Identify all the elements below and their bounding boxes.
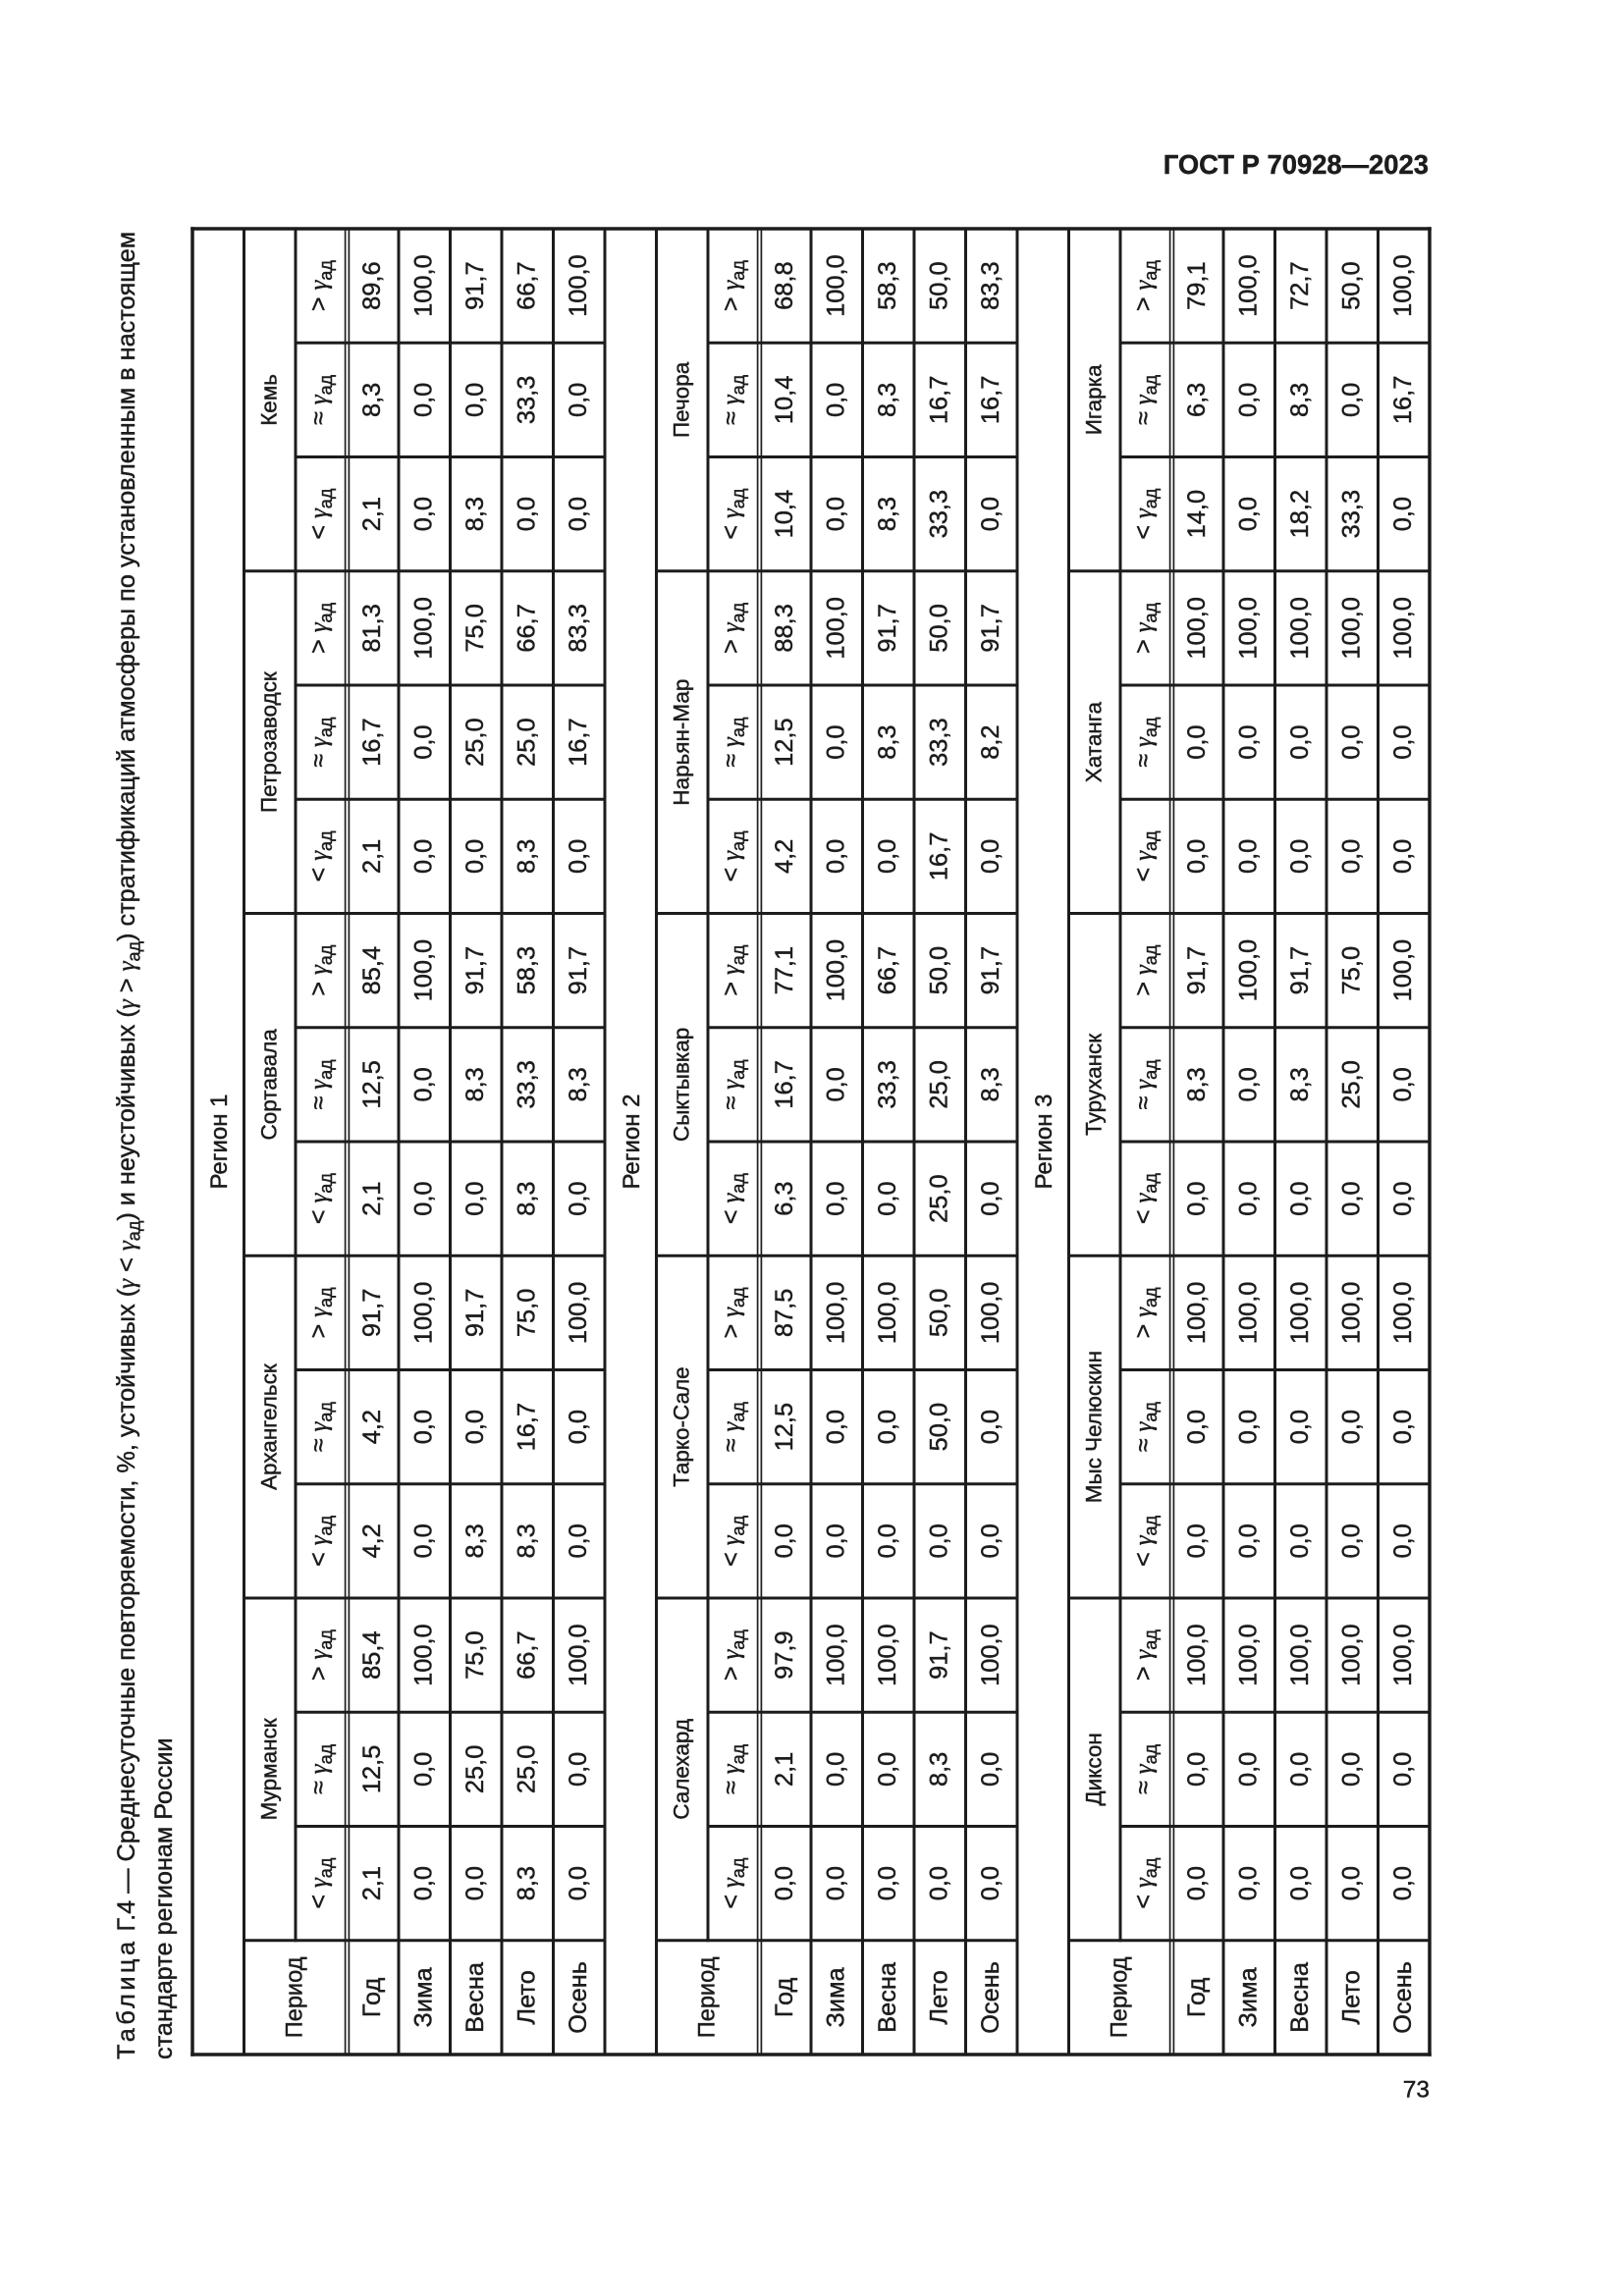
svg-text:16,7: 16,7 [358,718,386,766]
svg-text:100,0: 100,0 [1234,254,1262,317]
svg-text:83,3: 83,3 [977,261,1004,309]
svg-text:> γад: > γад [304,602,336,653]
svg-text:4,2: 4,2 [358,1523,386,1558]
svg-text:> γад: > γад [717,602,748,653]
svg-text:0,0: 0,0 [1234,1181,1262,1215]
svg-text:0,0: 0,0 [1389,1866,1417,1900]
svg-text:< γад: < γад [304,1857,336,1908]
svg-text:91,7: 91,7 [977,604,1004,652]
svg-text:0,0: 0,0 [1389,1752,1417,1787]
svg-text:0,0: 0,0 [925,1866,952,1900]
svg-text:0,0: 0,0 [461,1181,489,1215]
svg-text:91,7: 91,7 [1183,946,1211,994]
svg-text:0,0: 0,0 [771,1866,798,1900]
svg-text:66,7: 66,7 [513,604,540,652]
svg-text:0,0: 0,0 [565,1410,592,1444]
svg-text:75,0: 75,0 [461,1630,489,1679]
svg-text:100,0: 100,0 [822,1624,849,1686]
svg-text:91,7: 91,7 [461,946,489,994]
svg-text:66,7: 66,7 [874,946,901,994]
svg-text:0,0: 0,0 [409,1410,437,1444]
svg-text:100,0: 100,0 [1234,1624,1262,1686]
svg-text:≈ γад: ≈ γад [304,374,336,425]
svg-text:50,0: 50,0 [925,1403,952,1451]
svg-text:100,0: 100,0 [874,1624,901,1686]
svg-text:75,0: 75,0 [461,604,489,652]
svg-text:Регион 2: Регион 2 [619,1094,645,1189]
svg-text:0,0: 0,0 [874,1523,901,1558]
svg-text:100,0: 100,0 [977,1282,1004,1345]
svg-text:> γад: > γад [717,944,748,995]
svg-text:Петрозаводск: Петрозаводск [256,671,281,813]
svg-text:2,1: 2,1 [771,1752,798,1787]
svg-text:0,0: 0,0 [822,383,849,417]
svg-text:≈ γад: ≈ γад [717,717,748,768]
svg-text:0,0: 0,0 [822,1523,849,1558]
svg-text:Мыс Челюскин: Мыс Челюскин [1081,1351,1106,1503]
svg-text:> γад: > γад [717,1287,748,1338]
svg-text:0,0: 0,0 [1337,1866,1365,1900]
svg-text:Зима: Зима [822,1966,849,2027]
svg-text:Период: Период [283,1956,308,2038]
svg-text:16,7: 16,7 [513,1403,540,1451]
svg-text:25,0: 25,0 [513,718,540,766]
svg-text:0,0: 0,0 [822,497,849,531]
svg-text:0,0: 0,0 [565,1181,592,1215]
svg-text:0,0: 0,0 [1337,1523,1365,1558]
svg-text:0,0: 0,0 [822,724,849,759]
svg-text:0,0: 0,0 [1183,1410,1211,1444]
svg-text:16,7: 16,7 [565,718,592,766]
svg-text:< γад: < γад [304,488,336,539]
svg-text:Диксон: Диксон [1081,1733,1106,1805]
svg-text:0,0: 0,0 [461,1410,489,1444]
svg-text:83,3: 83,3 [565,604,592,652]
svg-text:0,0: 0,0 [822,1752,849,1787]
svg-text:0,0: 0,0 [409,1523,437,1558]
svg-text:< γад: < γад [1129,1857,1161,1908]
svg-text:0,0: 0,0 [1337,383,1365,417]
svg-text:8,3: 8,3 [358,383,386,417]
svg-text:Игарка: Игарка [1081,364,1106,435]
svg-text:0,0: 0,0 [1337,1752,1365,1787]
svg-text:0,0: 0,0 [1234,1410,1262,1444]
svg-text:100,0: 100,0 [1286,1282,1314,1345]
svg-text:≈ γад: ≈ γад [1129,717,1161,768]
svg-text:Хатанга: Хатанга [1081,702,1106,783]
svg-text:Год: Год [1183,1977,1211,2017]
svg-text:0,0: 0,0 [1337,724,1365,759]
svg-text:91,7: 91,7 [461,261,489,309]
svg-text:< γад: < γад [304,830,336,881]
svg-text:50,0: 50,0 [925,261,952,309]
svg-text:Весна: Весна [1286,1961,1314,2033]
svg-text:100,0: 100,0 [1183,1624,1211,1686]
svg-text:100,0: 100,0 [565,1282,592,1345]
svg-text:Осень: Осень [977,1961,1004,2034]
svg-text:0,0: 0,0 [1389,497,1417,531]
svg-text:≈ γад: ≈ γад [717,1059,748,1110]
svg-text:< γад: < γад [717,830,748,881]
svg-text:91,7: 91,7 [874,604,901,652]
svg-text:Лето: Лето [513,1970,540,2024]
svg-text:100,0: 100,0 [822,254,849,317]
svg-text:58,3: 58,3 [513,946,540,994]
svg-text:25,0: 25,0 [461,718,489,766]
svg-text:8,3: 8,3 [513,839,540,874]
svg-text:100,0: 100,0 [977,1624,1004,1686]
svg-text:0,0: 0,0 [1389,1067,1417,1101]
svg-text:97,9: 97,9 [771,1630,798,1679]
svg-text:0,0: 0,0 [1389,839,1417,874]
svg-text:0,0: 0,0 [409,497,437,531]
svg-text:8,3: 8,3 [977,1067,1004,1101]
svg-text:0,0: 0,0 [1337,1410,1365,1444]
svg-text:91,7: 91,7 [565,946,592,994]
svg-text:0,0: 0,0 [977,1866,1004,1900]
svg-text:стандарте регионам России: стандарте регионам России [150,1737,178,2059]
svg-text:< γад: < γад [717,1857,748,1908]
svg-text:16,7: 16,7 [1389,376,1417,424]
svg-text:33,3: 33,3 [925,490,952,538]
svg-text:6,3: 6,3 [771,1181,798,1215]
svg-text:100,0: 100,0 [1183,597,1211,660]
svg-text:6,3: 6,3 [1183,383,1211,417]
svg-text:0,0: 0,0 [977,1752,1004,1787]
svg-text:0,0: 0,0 [874,1752,901,1787]
svg-text:0,0: 0,0 [409,383,437,417]
svg-text:0,0: 0,0 [771,1523,798,1558]
svg-text:8,3: 8,3 [461,1523,489,1558]
svg-text:100,0: 100,0 [1234,597,1262,660]
svg-text:0,0: 0,0 [822,1181,849,1215]
svg-text:25,0: 25,0 [513,1745,540,1793]
svg-text:77,1: 77,1 [771,946,798,994]
svg-text:33,3: 33,3 [513,1060,540,1108]
svg-text:50,0: 50,0 [925,1289,952,1337]
svg-text:85,4: 85,4 [358,1630,386,1679]
svg-text:100,0: 100,0 [1389,597,1417,660]
svg-text:100,0: 100,0 [1389,939,1417,1002]
svg-text:0,0: 0,0 [1183,1866,1211,1900]
svg-text:0,0: 0,0 [1286,1752,1314,1787]
svg-text:100,0: 100,0 [1337,1624,1365,1686]
svg-text:Мурманск: Мурманск [256,1718,281,1820]
svg-text:8,3: 8,3 [1286,383,1314,417]
svg-text:88,3: 88,3 [771,604,798,652]
svg-text:0,0: 0,0 [925,1523,952,1558]
svg-text:0,0: 0,0 [1389,1181,1417,1215]
svg-text:0,0: 0,0 [822,1067,849,1101]
svg-text:Нарьян-Мар: Нарьян-Мар [669,679,693,806]
svg-text:100,0: 100,0 [822,939,849,1002]
svg-text:25,0: 25,0 [1337,1060,1365,1108]
svg-text:8,3: 8,3 [1286,1067,1314,1101]
svg-text:2,1: 2,1 [358,1181,386,1215]
svg-text:8,3: 8,3 [874,383,901,417]
svg-text:> γад: > γад [1129,1629,1161,1681]
svg-text:Сыктывкар: Сыктывкар [669,1028,693,1142]
svg-text:8,3: 8,3 [874,724,901,759]
svg-text:0,0: 0,0 [1234,724,1262,759]
svg-text:0,0: 0,0 [1286,724,1314,759]
svg-text:Зима: Зима [409,1966,437,2027]
svg-text:85,4: 85,4 [358,946,386,994]
svg-text:2,1: 2,1 [358,839,386,874]
svg-text:0,0: 0,0 [565,1752,592,1787]
svg-text:Весна: Весна [461,1961,489,2033]
svg-text:Регион 3: Регион 3 [1031,1094,1057,1189]
svg-text:0,0: 0,0 [977,1523,1004,1558]
svg-text:66,7: 66,7 [513,261,540,309]
svg-text:79,1: 79,1 [1183,261,1211,309]
svg-text:100,0: 100,0 [1234,1282,1262,1345]
svg-text:< γад: < γад [1129,1515,1161,1566]
svg-text:100,0: 100,0 [822,597,849,660]
svg-text:Салехард: Салехард [669,1719,693,1820]
svg-text:8,3: 8,3 [513,1866,540,1900]
svg-text:> γад: > γад [304,1287,336,1338]
svg-text:≈ γад: ≈ γад [304,1743,336,1794]
svg-text:> γад: > γад [304,260,336,311]
svg-text:0,0: 0,0 [409,1866,437,1900]
svg-text:100,0: 100,0 [822,1282,849,1345]
svg-text:≈ γад: ≈ γад [1129,1402,1161,1453]
svg-text:0,0: 0,0 [409,1067,437,1101]
svg-text:91,7: 91,7 [358,1289,386,1337]
svg-text:0,0: 0,0 [1389,724,1417,759]
svg-text:Весна: Весна [874,1961,901,2033]
svg-text:12,5: 12,5 [771,718,798,766]
svg-text:0,0: 0,0 [1234,1752,1262,1787]
svg-text:Тарко-Сале: Тарко-Сале [669,1366,693,1487]
svg-text:0,0: 0,0 [1234,383,1262,417]
svg-text:0,0: 0,0 [1389,1523,1417,1558]
svg-text:0,0: 0,0 [1183,839,1211,874]
svg-text:91,7: 91,7 [461,1289,489,1337]
svg-text:ГОСТ Р 70928—2023: ГОСТ Р 70928—2023 [1164,149,1429,180]
svg-text:8,3: 8,3 [513,1523,540,1558]
svg-text:100,0: 100,0 [409,939,437,1002]
svg-text:Зима: Зима [1234,1966,1262,2027]
svg-text:Печора: Печора [669,361,693,438]
svg-text:≈ γад: ≈ γад [717,1743,748,1794]
svg-text:0,0: 0,0 [977,839,1004,874]
svg-text:≈ γад: ≈ γад [304,1059,336,1110]
svg-text:> γад: > γад [717,260,748,311]
svg-text:0,0: 0,0 [1286,839,1314,874]
svg-text:89,6: 89,6 [358,261,386,309]
svg-text:16,7: 16,7 [771,1060,798,1108]
svg-text:0,0: 0,0 [513,497,540,531]
svg-text:10,4: 10,4 [771,490,798,538]
svg-text:50,0: 50,0 [925,946,952,994]
svg-text:0,0: 0,0 [822,839,849,874]
svg-text:50,0: 50,0 [1337,261,1365,309]
svg-text:0,0: 0,0 [1183,1181,1211,1215]
svg-text:0,0: 0,0 [1183,1752,1211,1787]
svg-text:0,0: 0,0 [1286,1410,1314,1444]
svg-text:Туруханск: Туруханск [1081,1034,1106,1136]
svg-text:< γад: < γад [717,488,748,539]
svg-text:33,3: 33,3 [925,718,952,766]
svg-text:100,0: 100,0 [874,1282,901,1345]
svg-text:25,0: 25,0 [925,1060,952,1108]
svg-text:8,2: 8,2 [977,724,1004,759]
svg-text:16,7: 16,7 [977,376,1004,424]
svg-text:12,5: 12,5 [771,1403,798,1451]
svg-text:0,0: 0,0 [1286,1523,1314,1558]
svg-text:100,0: 100,0 [1234,939,1262,1002]
svg-text:25,0: 25,0 [461,1745,489,1793]
svg-text:> γад: > γад [1129,1287,1161,1338]
svg-text:0,0: 0,0 [874,1410,901,1444]
svg-text:0,0: 0,0 [565,839,592,874]
svg-text:0,0: 0,0 [1183,1523,1211,1558]
svg-text:Сортавала: Сортавала [256,1029,281,1141]
svg-text:< γад: < γад [717,1173,748,1224]
svg-text:< γад: < γад [717,1515,748,1566]
svg-text:0,0: 0,0 [977,1181,1004,1215]
svg-text:0,0: 0,0 [461,383,489,417]
svg-text:0,0: 0,0 [565,497,592,531]
svg-text:14,0: 14,0 [1183,490,1211,538]
svg-text:0,0: 0,0 [874,839,901,874]
svg-text:100,0: 100,0 [409,1282,437,1345]
svg-text:0,0: 0,0 [1286,1866,1314,1900]
svg-text:> γад: > γад [1129,602,1161,653]
svg-text:0,0: 0,0 [874,1866,901,1900]
svg-text:68,8: 68,8 [771,261,798,309]
svg-text:0,0: 0,0 [1234,1523,1262,1558]
svg-text:8,3: 8,3 [874,497,901,531]
svg-text:33,3: 33,3 [1337,490,1365,538]
svg-text:91,7: 91,7 [977,946,1004,994]
svg-text:< γад: < γад [304,1173,336,1224]
svg-text:> γад: > γад [1129,260,1161,311]
svg-text:4,2: 4,2 [358,1410,386,1444]
svg-text:< γад: < γад [1129,1173,1161,1224]
svg-text:100,0: 100,0 [409,1624,437,1686]
svg-text:100,0: 100,0 [1286,1624,1314,1686]
svg-text:Осень: Осень [1389,1961,1417,2034]
svg-text:0,0: 0,0 [409,1181,437,1215]
svg-text:25,0: 25,0 [925,1174,952,1222]
svg-text:≈ γад: ≈ γад [717,374,748,425]
svg-text:12,5: 12,5 [358,1745,386,1793]
svg-text:2,1: 2,1 [358,497,386,531]
svg-text:8,3: 8,3 [565,1067,592,1101]
svg-text:100,0: 100,0 [1183,1282,1211,1345]
svg-text:0,0: 0,0 [1234,839,1262,874]
svg-text:0,0: 0,0 [1337,839,1365,874]
svg-text:33,3: 33,3 [874,1060,901,1108]
svg-text:8,3: 8,3 [461,497,489,531]
svg-text:≈ γад: ≈ γад [1129,374,1161,425]
svg-text:100,0: 100,0 [1286,597,1314,660]
svg-text:0,0: 0,0 [1234,497,1262,531]
svg-text:> γад: > γад [304,1629,336,1681]
svg-text:100,0: 100,0 [1389,1282,1417,1345]
svg-text:Период: Период [1108,1956,1133,2038]
svg-text:Период: Период [695,1956,721,2038]
svg-text:100,0: 100,0 [1389,1624,1417,1686]
svg-text:18,2: 18,2 [1286,490,1314,538]
svg-text:8,3: 8,3 [925,1752,952,1787]
svg-text:81,3: 81,3 [358,604,386,652]
svg-text:0,0: 0,0 [874,1181,901,1215]
svg-text:50,0: 50,0 [925,604,952,652]
svg-text:100,0: 100,0 [1389,254,1417,317]
svg-text:≈ γад: ≈ γад [304,717,336,768]
svg-text:16,7: 16,7 [925,376,952,424]
svg-text:< γад: < γад [304,1515,336,1566]
svg-text:75,0: 75,0 [1337,946,1365,994]
svg-text:≈ γад: ≈ γад [1129,1059,1161,1110]
svg-text:0,0: 0,0 [1234,1067,1262,1101]
svg-text:75,0: 75,0 [513,1289,540,1337]
svg-text:8,3: 8,3 [513,1181,540,1215]
svg-text:0,0: 0,0 [565,1523,592,1558]
svg-text:Осень: Осень [565,1961,592,2034]
svg-text:> γад: > γад [1129,944,1161,995]
svg-text:100,0: 100,0 [1337,1282,1365,1345]
svg-text:Лето: Лето [1337,1970,1365,2024]
svg-text:≈ γад: ≈ γад [717,1402,748,1453]
svg-text:0,0: 0,0 [1337,1181,1365,1215]
svg-text:Год: Год [771,1977,798,2017]
svg-text:100,0: 100,0 [565,1624,592,1686]
svg-text:0,0: 0,0 [822,1866,849,1900]
svg-text:Лето: Лето [925,1970,952,2024]
svg-text:0,0: 0,0 [461,1866,489,1900]
svg-text:Кемь: Кемь [256,374,281,426]
svg-text:0,0: 0,0 [1183,724,1211,759]
svg-text:8,3: 8,3 [1183,1067,1211,1101]
svg-text:0,0: 0,0 [409,724,437,759]
svg-text:100,0: 100,0 [565,254,592,317]
svg-text:0,0: 0,0 [409,839,437,874]
svg-text:91,7: 91,7 [1286,946,1314,994]
svg-text:≈ γад: ≈ γад [1129,1743,1161,1794]
svg-text:100,0: 100,0 [409,597,437,660]
svg-text:8,3: 8,3 [461,1067,489,1101]
svg-text:10,4: 10,4 [771,376,798,424]
svg-text:0,0: 0,0 [565,1866,592,1900]
svg-text:58,3: 58,3 [874,261,901,309]
svg-text:Год: Год [358,1977,386,2017]
svg-text:Регион 1: Регион 1 [206,1094,233,1189]
svg-text:0,0: 0,0 [1286,1181,1314,1215]
svg-text:0,0: 0,0 [822,1410,849,1444]
svg-text:16,7: 16,7 [925,832,952,881]
svg-text:≈ γад: ≈ γад [304,1402,336,1453]
svg-text:0,0: 0,0 [1234,1866,1262,1900]
svg-text:87,5: 87,5 [771,1289,798,1337]
svg-text:< γад: < γад [1129,488,1161,539]
svg-text:0,0: 0,0 [977,497,1004,531]
svg-text:100,0: 100,0 [1337,597,1365,660]
svg-text:0,0: 0,0 [461,839,489,874]
svg-text:2,1: 2,1 [358,1866,386,1900]
svg-text:Архангельск: Архангельск [256,1363,281,1490]
svg-text:4,2: 4,2 [771,839,798,874]
svg-text:12,5: 12,5 [358,1060,386,1108]
svg-text:0,0: 0,0 [565,383,592,417]
svg-text:> γад: > γад [717,1629,748,1681]
svg-text:100,0: 100,0 [409,254,437,317]
svg-text:33,3: 33,3 [513,376,540,424]
